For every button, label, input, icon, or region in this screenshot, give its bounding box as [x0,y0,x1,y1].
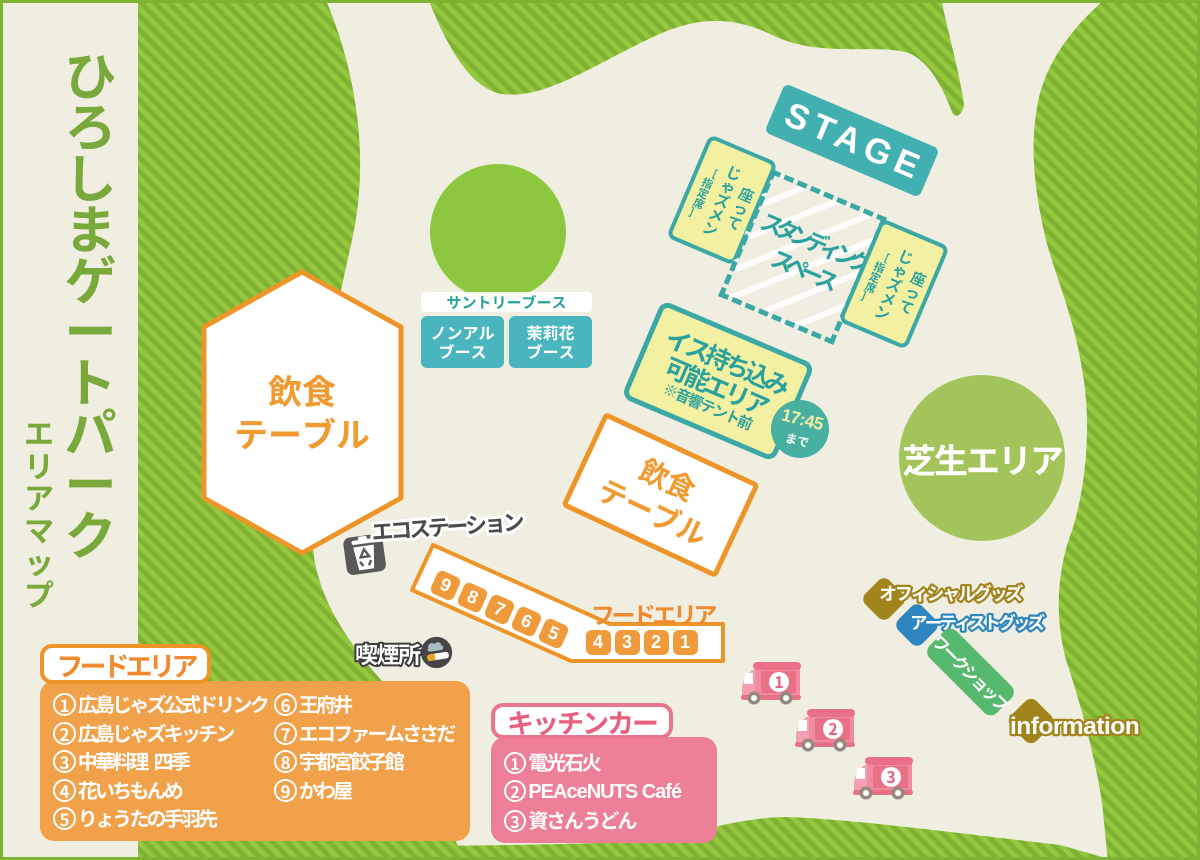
svg-text:エコステーション: エコステーション [370,508,524,547]
svg-text:2: 2 [828,716,837,740]
svg-text:アーティストグッズ: アーティストグッズ [910,610,1046,635]
svg-text:喫煙所: 喫煙所 [355,636,421,670]
svg-text:3: 3 [886,764,895,788]
svg-text:information: information [1010,713,1139,740]
svg-text:1: 1 [774,669,783,693]
